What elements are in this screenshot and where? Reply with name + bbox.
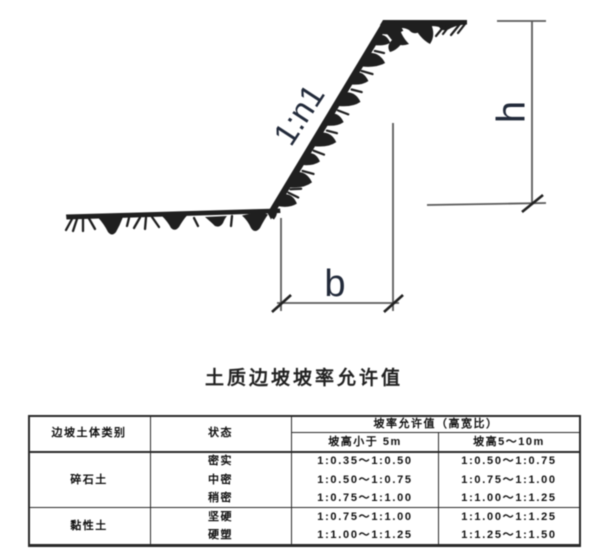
svg-text:h: h <box>490 101 534 123</box>
svg-text:b: b <box>324 263 345 305</box>
